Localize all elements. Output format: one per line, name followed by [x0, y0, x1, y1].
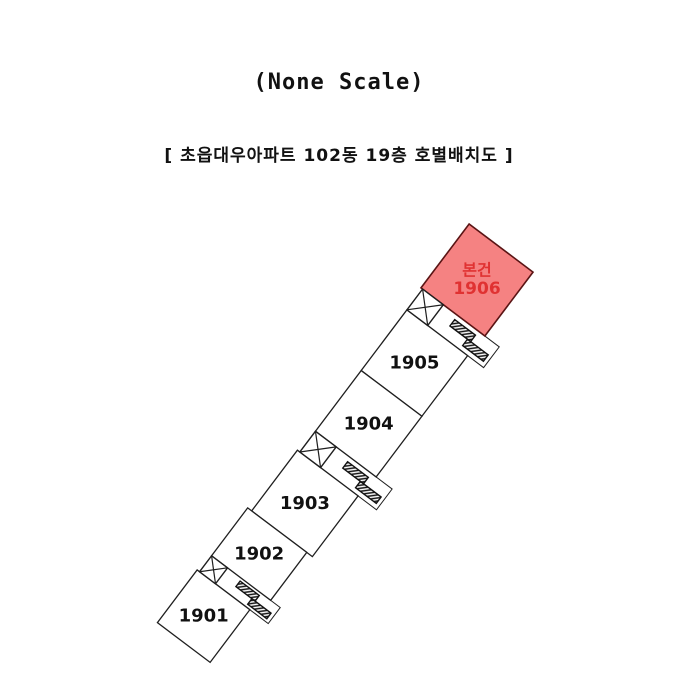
unit-label-1901: 1901: [179, 606, 229, 627]
unit-sublabel-1906: 본건: [462, 261, 491, 280]
floorplan-svg: 본건190619051904190319021901: [0, 0, 678, 700]
unit-label-1903: 1903: [280, 493, 330, 514]
unit-label-1902: 1902: [234, 544, 284, 565]
unit-label-1906: 1906: [453, 279, 500, 299]
unit-label-1904: 1904: [344, 413, 394, 434]
unit-label-1905: 1905: [389, 353, 439, 374]
floorplan-page: (None Scale) [ 초읍대우아파트 102동 19층 호별배치도 ] …: [0, 0, 678, 700]
